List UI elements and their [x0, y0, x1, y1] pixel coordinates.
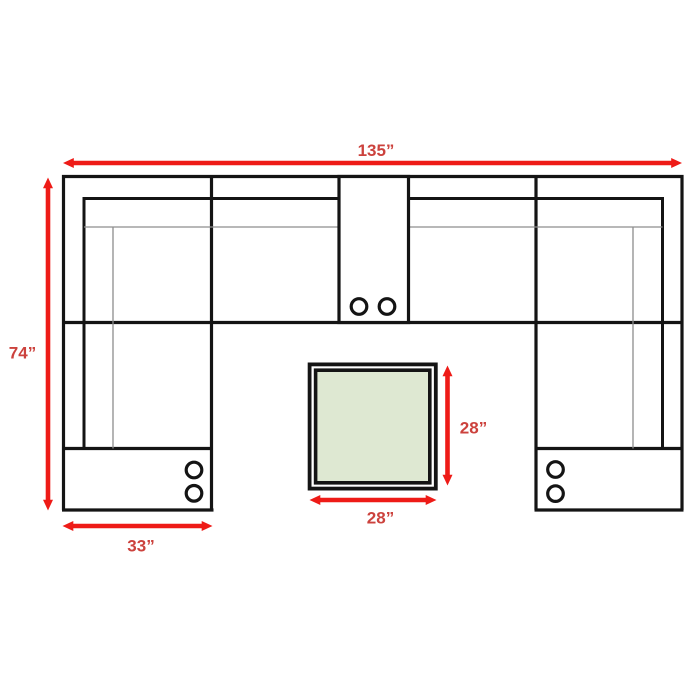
- svg-text:28”: 28”: [367, 509, 394, 528]
- svg-text:28”: 28”: [460, 419, 487, 438]
- svg-text:135”: 135”: [358, 141, 395, 160]
- svg-text:33”: 33”: [127, 537, 154, 556]
- svg-text:74”: 74”: [9, 344, 36, 363]
